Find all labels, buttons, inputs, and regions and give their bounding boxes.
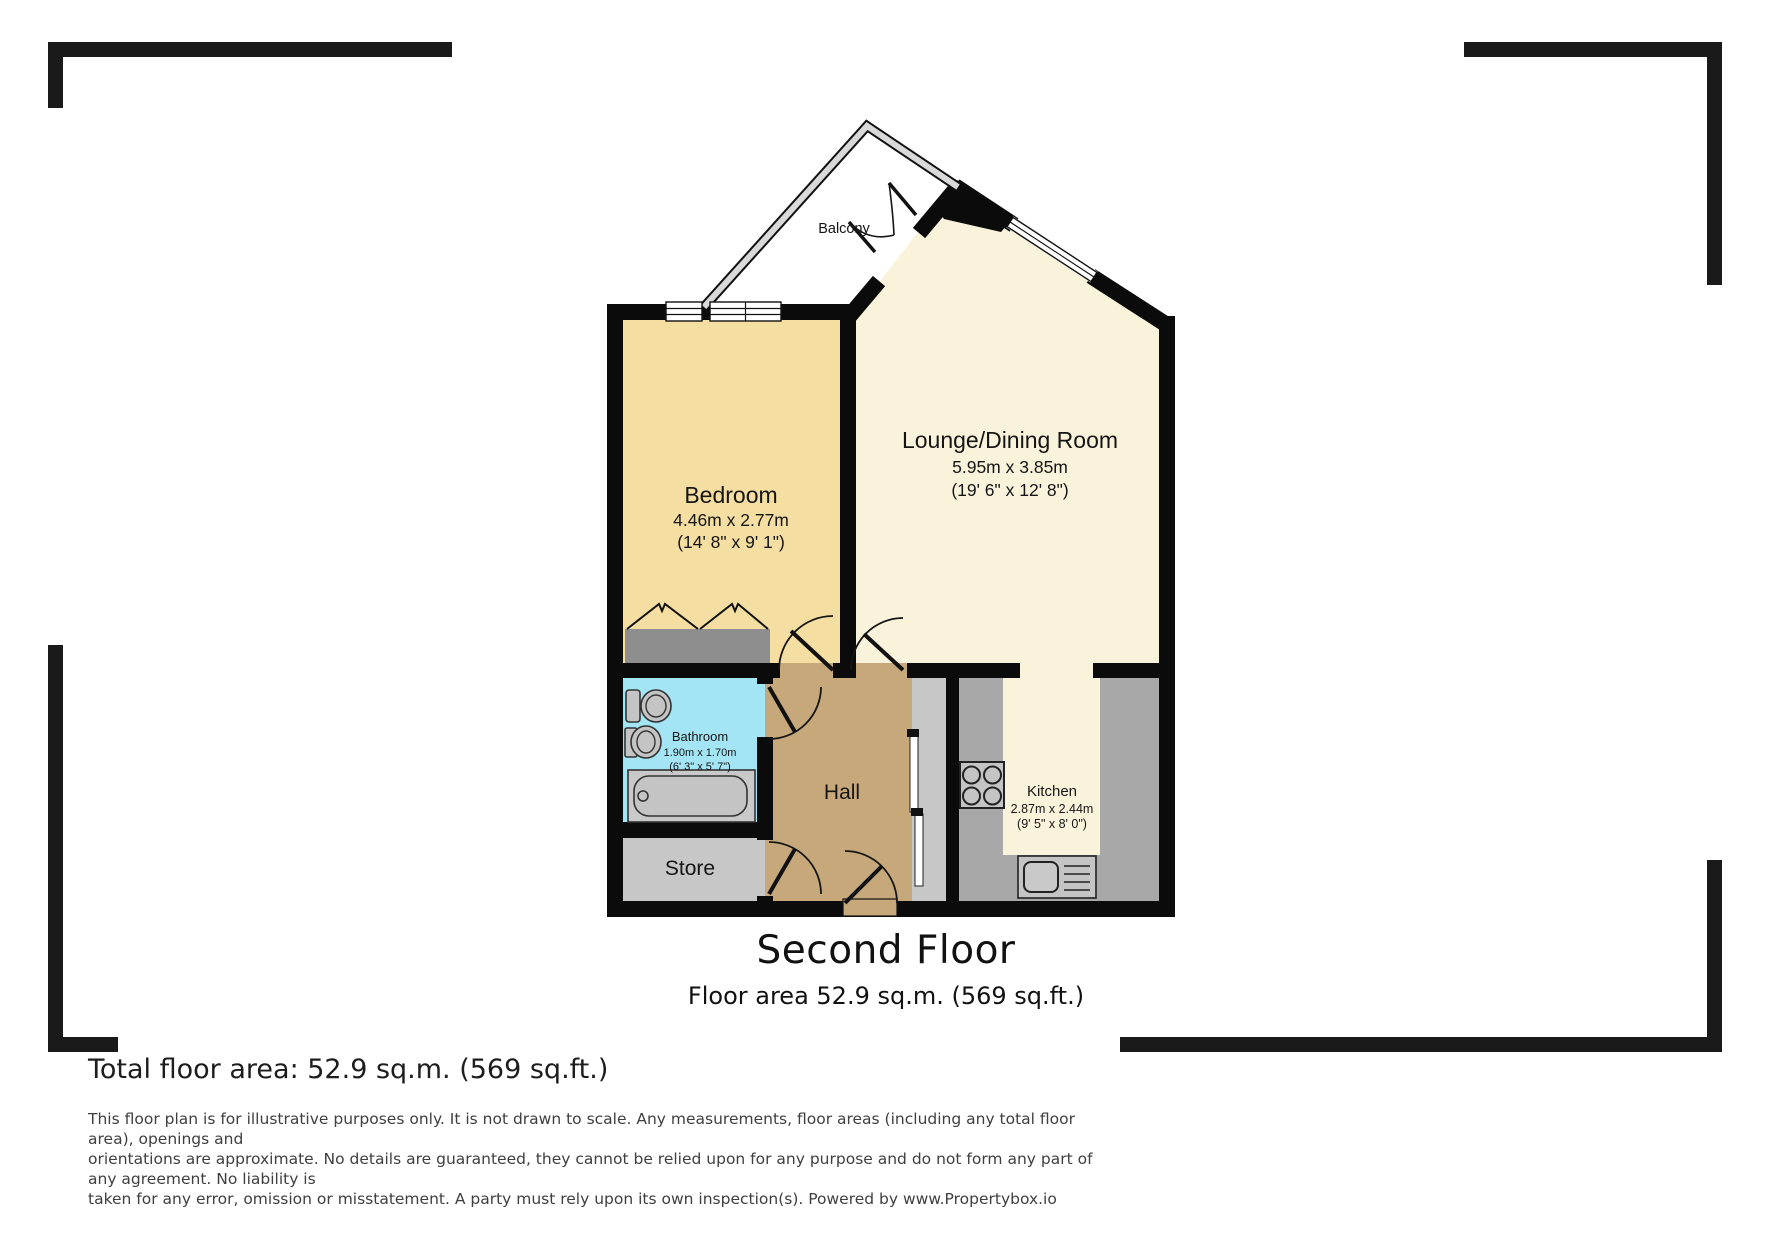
floor-title-block: Second Floor Floor area 52.9 sq.m. (569 … <box>536 928 1236 1010</box>
bedroom-dim-ft: (14' 8" x 9' 1") <box>677 532 785 552</box>
basin-symbol <box>625 726 661 758</box>
toilet-symbol <box>626 690 671 722</box>
cupboard-door-stop-1 <box>907 729 919 737</box>
kitchen-dim-m: 2.87m x 2.44m <box>1011 802 1094 816</box>
hall-label: Hall <box>824 781 860 804</box>
bedroom-dim-m: 4.46m x 2.77m <box>673 510 789 530</box>
bedroom-label: Bedroom <box>684 482 777 508</box>
corner-bracket-top-right-v <box>1707 42 1722 285</box>
wall-bedroom-lounge <box>840 316 856 678</box>
hob-symbol <box>960 762 1004 808</box>
corner-bracket-bottom-right-h <box>1120 1037 1722 1052</box>
store-label: Store <box>665 857 715 880</box>
lounge-label: Lounge/Dining Room <box>902 427 1118 453</box>
lounge-dim-m: 5.95m x 3.85m <box>952 457 1068 477</box>
bathroom-dim-ft: (6' 3" x 5' 7") <box>669 761 731 773</box>
cupboard-door-2 <box>915 814 923 886</box>
corner-bracket-top-left-v <box>48 42 63 108</box>
window-symbol-bedroom-2 <box>710 302 781 321</box>
wall-bathroom-store <box>607 822 773 838</box>
corner-bracket-bottom-right-v <box>1707 860 1722 1052</box>
wall-bedroom-bottom <box>607 663 780 678</box>
lounge-dim-ft: (19' 6" x 12' 8") <box>951 480 1068 500</box>
door-balcony-french <box>849 183 916 252</box>
wall-store-right <box>757 896 773 917</box>
bathroom-dim-m: 1.90m x 1.70m <box>664 747 737 759</box>
footer: Total floor area: 52.9 sq.m. (569 sq.ft.… <box>88 1054 1108 1209</box>
window-symbol-bedroom-1 <box>666 302 702 321</box>
cupboard-door-stop-2 <box>911 808 923 816</box>
bathroom-label: Bathroom <box>672 729 728 744</box>
floor-title: Second Floor <box>536 928 1236 973</box>
corner-bracket-top-right-h <box>1464 42 1722 57</box>
floor-area-subtitle: Floor area 52.9 sq.m. (569 sq.ft.) <box>536 982 1236 1010</box>
cupboard-door-1 <box>910 734 918 812</box>
kitchen-dim-ft: (9' 5" x 8' 0") <box>1017 817 1087 831</box>
bathtub-symbol <box>628 770 755 822</box>
wall-kitchen-top-1 <box>907 663 1020 678</box>
wall-kitchen-left <box>946 678 959 901</box>
balcony-label: Balcony <box>818 221 870 237</box>
wall-bedroom-bottom-2 <box>833 663 856 678</box>
disclaimer-text: This floor plan is for illustrative purp… <box>88 1109 1108 1209</box>
wall-bathroom-right-1 <box>757 663 773 684</box>
corner-bracket-bottom-left-v <box>48 645 63 1052</box>
wall-kitchen-top-2 <box>1093 663 1159 678</box>
corner-bracket-bottom-left-h <box>48 1037 118 1052</box>
wardrobe-box <box>625 629 770 665</box>
wall-right <box>1159 316 1175 917</box>
corner-bracket-top-left-h <box>48 42 452 57</box>
floorplan-page: Balcony Bedroom 4.46m x 2.77m (14' 8" x … <box>0 0 1771 1239</box>
kitchen-label: Kitchen <box>1027 783 1077 800</box>
kitchen-sink-symbol <box>1018 856 1096 898</box>
floorplan-drawing: Balcony Bedroom 4.46m x 2.77m (14' 8" x … <box>540 100 1240 950</box>
total-floor-area: Total floor area: 52.9 sq.m. (569 sq.ft.… <box>88 1054 1108 1085</box>
